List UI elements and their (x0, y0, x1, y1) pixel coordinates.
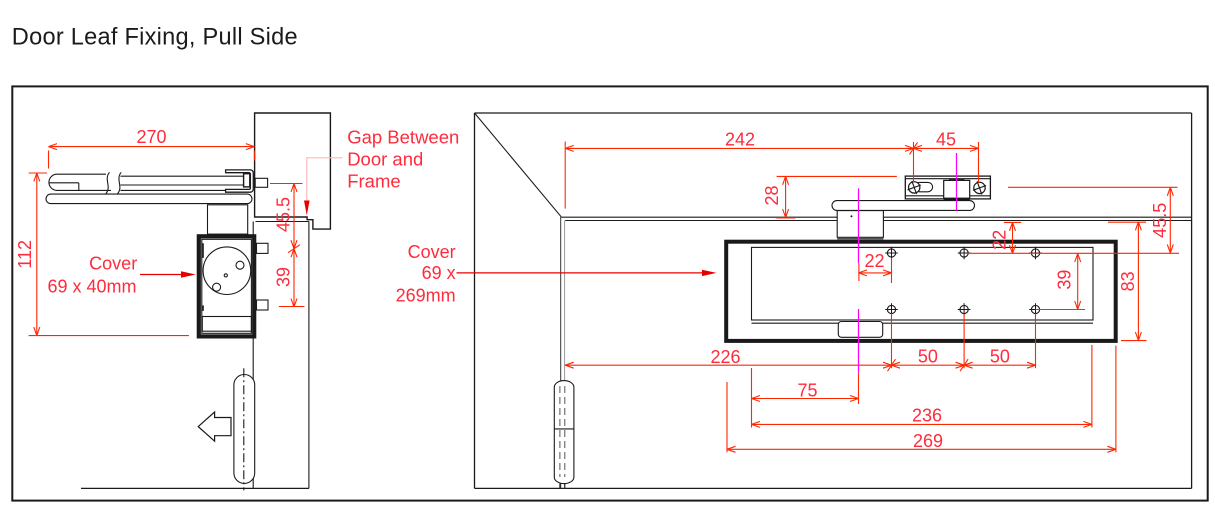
svg-text:236: 236 (912, 406, 942, 426)
svg-text:Frame: Frame (347, 171, 400, 192)
svg-text:69 x 40mm: 69 x 40mm (47, 276, 136, 296)
svg-text:242: 242 (725, 129, 755, 149)
svg-text:75: 75 (797, 380, 817, 400)
svg-text:112: 112 (15, 240, 35, 269)
svg-text:69 x: 69 x (422, 263, 456, 283)
svg-text:Cover: Cover (89, 253, 137, 273)
svg-text:Door Leaf Fixing, Pull Side: Door Leaf Fixing, Pull Side (12, 24, 298, 50)
svg-text:45: 45 (936, 129, 956, 149)
svg-text:50: 50 (990, 346, 1010, 366)
svg-text:Door and: Door and (347, 149, 423, 170)
svg-text:39: 39 (1055, 270, 1075, 290)
svg-text:45.5: 45.5 (1150, 203, 1170, 238)
svg-text:269: 269 (913, 431, 943, 451)
svg-text:39: 39 (274, 267, 294, 287)
svg-text:226: 226 (710, 347, 740, 367)
svg-text:28: 28 (762, 185, 782, 205)
svg-text:Gap Between: Gap Between (347, 126, 459, 147)
svg-text:22: 22 (864, 251, 884, 271)
svg-text:270: 270 (136, 127, 166, 147)
svg-text:50: 50 (918, 346, 938, 366)
svg-text:Cover: Cover (408, 242, 456, 262)
svg-text:269mm: 269mm (396, 285, 456, 305)
svg-text:45.5: 45.5 (274, 197, 294, 232)
svg-text:83: 83 (1118, 271, 1138, 291)
svg-text:22: 22 (990, 230, 1010, 250)
